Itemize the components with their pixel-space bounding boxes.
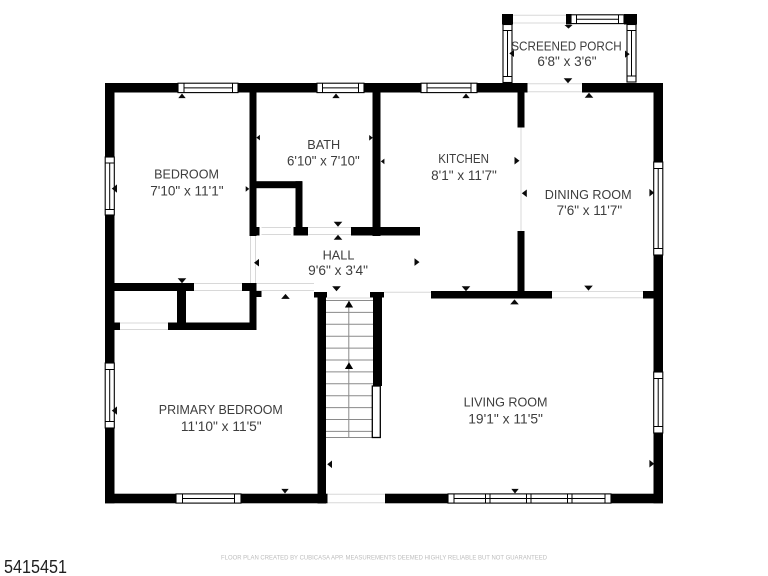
svg-text:6'8" x 3'6": 6'8" x 3'6" [537, 54, 596, 69]
svg-text:DINING ROOM: DINING ROOM [545, 187, 632, 202]
svg-text:5415451: 5415451 [4, 556, 67, 576]
svg-text:7'10" x 11'1": 7'10" x 11'1" [150, 183, 224, 198]
svg-text:FLOOR PLAN CREATED BY CUBICASA: FLOOR PLAN CREATED BY CUBICASA APP. MEAS… [221, 556, 548, 562]
svg-text:19'1" x 11'5": 19'1" x 11'5" [468, 411, 543, 426]
svg-text:11'10" x 11'5": 11'10" x 11'5" [181, 419, 262, 434]
svg-text:9'6" x 3'4": 9'6" x 3'4" [308, 263, 368, 278]
svg-text:HALL: HALL [323, 248, 355, 263]
svg-text:KITCHEN: KITCHEN [438, 151, 489, 166]
svg-text:SCREENED PORCH: SCREENED PORCH [511, 39, 622, 54]
svg-text:8'1" x 11'7": 8'1" x 11'7" [431, 168, 497, 183]
svg-text:BEDROOM: BEDROOM [154, 166, 219, 181]
svg-text:PRIMARY BEDROOM: PRIMARY BEDROOM [159, 402, 283, 417]
svg-text:7'6" x 11'7": 7'6" x 11'7" [557, 203, 623, 218]
svg-text:BATH: BATH [307, 137, 340, 152]
svg-text:6'10" x 7'10": 6'10" x 7'10" [287, 153, 360, 168]
svg-text:LIVING ROOM: LIVING ROOM [464, 394, 548, 409]
